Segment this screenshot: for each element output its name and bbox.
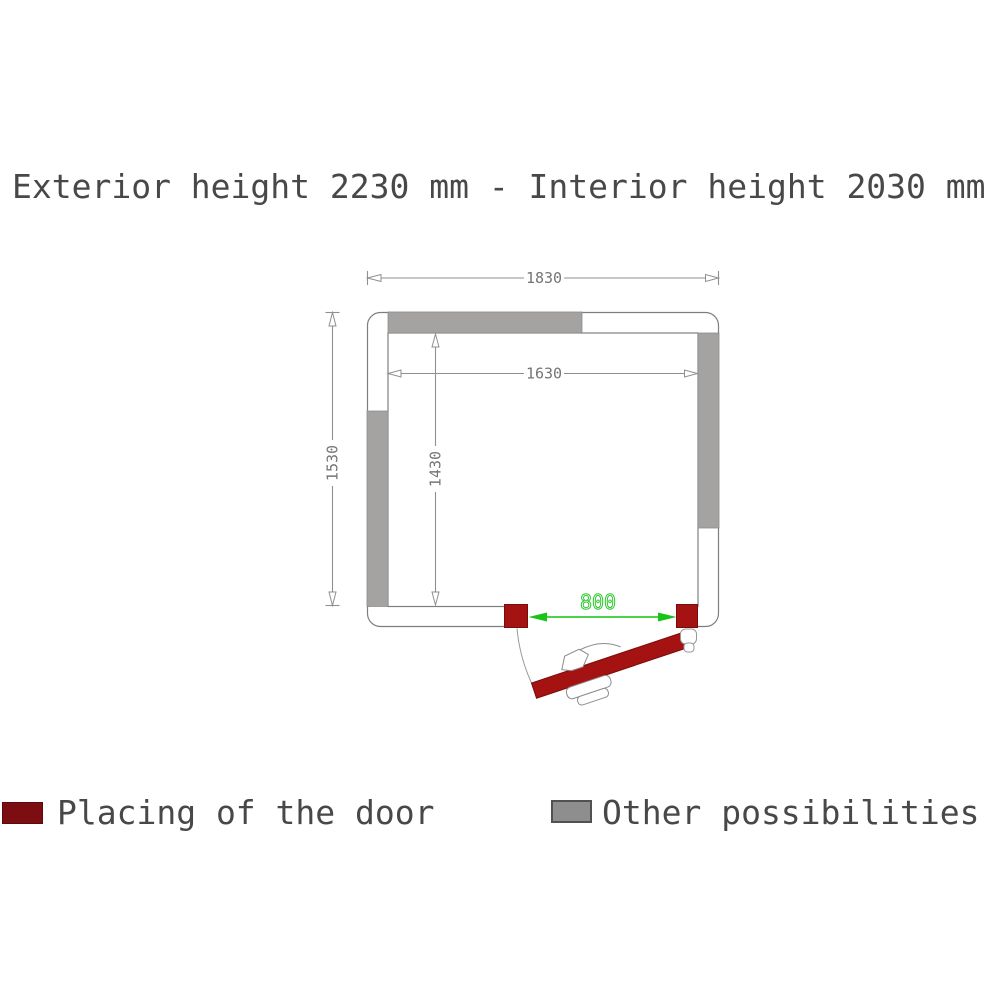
option-bar-left-wall bbox=[367, 411, 388, 607]
dim-exterior-width-value: 1830 bbox=[526, 269, 562, 287]
dim-exterior-depth: 1530 bbox=[324, 313, 342, 606]
option-bar-top-wall bbox=[388, 312, 582, 333]
dim-exterior-width: 1830 bbox=[368, 269, 719, 287]
legend-label-other: Other possibilities bbox=[602, 796, 980, 829]
door-leaf bbox=[531, 631, 692, 698]
door-jamb-left bbox=[505, 605, 528, 628]
door-swing-arc bbox=[517, 629, 532, 685]
dim-door-width-value: 800 bbox=[580, 590, 616, 614]
legend-label-door: Placing of the door bbox=[57, 796, 435, 829]
dim-interior-depth-value: 1430 bbox=[427, 451, 445, 487]
dim-exterior-depth-value: 1530 bbox=[324, 445, 342, 481]
legend-swatch-other bbox=[551, 800, 592, 823]
legend-swatch-door bbox=[2, 802, 43, 824]
door-hinge bbox=[681, 629, 697, 644]
page: Exterior height 2230 mm - Interior heigh… bbox=[0, 0, 1000, 1000]
door-leaf-group bbox=[526, 615, 699, 718]
dim-interior-width-value: 1630 bbox=[526, 365, 562, 383]
door-hinge-pin bbox=[684, 643, 694, 652]
floor-plan-diagram: 1830 1530 1630 1430 bbox=[0, 0, 1000, 1000]
door-jamb-right bbox=[677, 605, 698, 628]
option-bar-right-wall bbox=[698, 333, 719, 528]
